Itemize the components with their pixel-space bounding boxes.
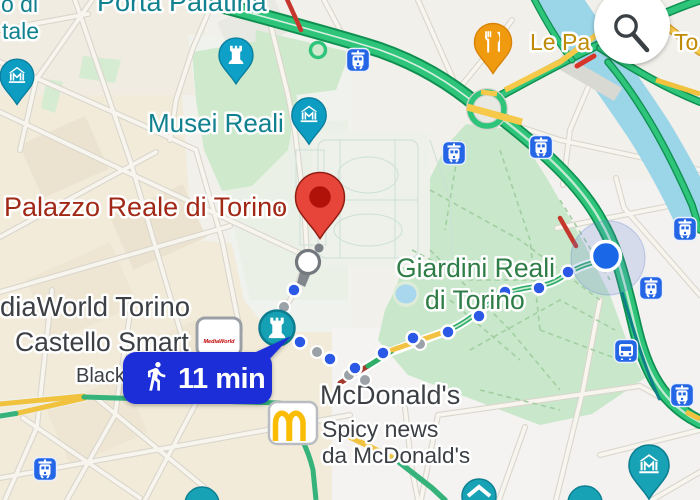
svg-text:tale: tale [2, 18, 39, 44]
svg-text:di Torino: di Torino [425, 285, 525, 315]
svg-text:Giardini Reali: Giardini Reali [396, 253, 555, 283]
svg-text:MediaWorld: MediaWorld [203, 339, 235, 345]
svg-text:da McDonald's: da McDonald's [322, 443, 470, 468]
svg-text:diaWorld Torino: diaWorld Torino [0, 291, 190, 322]
svg-text:Spicy news: Spicy news [322, 416, 438, 442]
svg-text:Porta Palatina: Porta Palatina [97, 0, 268, 17]
svg-text:Musei Reali: Musei Reali [148, 108, 284, 138]
svg-text:To: To [674, 29, 698, 55]
svg-text:o di: o di [1, 0, 38, 17]
svg-text:Le Pa: Le Pa [530, 29, 590, 55]
svg-text:Black: Black [76, 365, 126, 387]
svg-text:McDonald's: McDonald's [320, 380, 460, 410]
svg-text:11 min: 11 min [178, 363, 265, 395]
svg-text:Palazzo Reale di Torino: Palazzo Reale di Torino [4, 192, 287, 222]
